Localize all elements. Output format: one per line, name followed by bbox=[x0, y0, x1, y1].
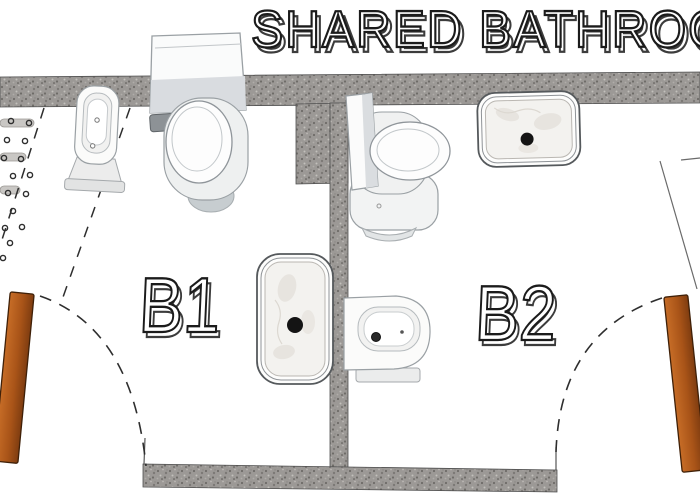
floor-plan: SHARED BATHROOM SHARED BATHROOM B1 B1 B2… bbox=[0, 0, 700, 500]
plan-title-text: SHARED BATHROOM bbox=[251, 4, 700, 56]
floor-plan-drawing bbox=[0, 0, 700, 500]
sink-b2 bbox=[477, 91, 581, 168]
room-label-b2-text: B2 bbox=[474, 274, 559, 352]
drain bbox=[287, 317, 303, 333]
door-b2 bbox=[664, 295, 700, 473]
toilet-b1 bbox=[149, 33, 248, 212]
door-swing-arc-b2 bbox=[556, 298, 662, 452]
bottom-wall bbox=[143, 464, 557, 492]
bidet-b2 bbox=[344, 296, 430, 382]
room-label-b1-text: B1 bbox=[138, 266, 223, 344]
toilet-b2 bbox=[346, 93, 450, 241]
adjacent-room-lines bbox=[660, 158, 700, 289]
door-b1 bbox=[0, 292, 34, 464]
door-swing-arc-b1 bbox=[40, 296, 146, 466]
sink-b1 bbox=[257, 254, 333, 384]
